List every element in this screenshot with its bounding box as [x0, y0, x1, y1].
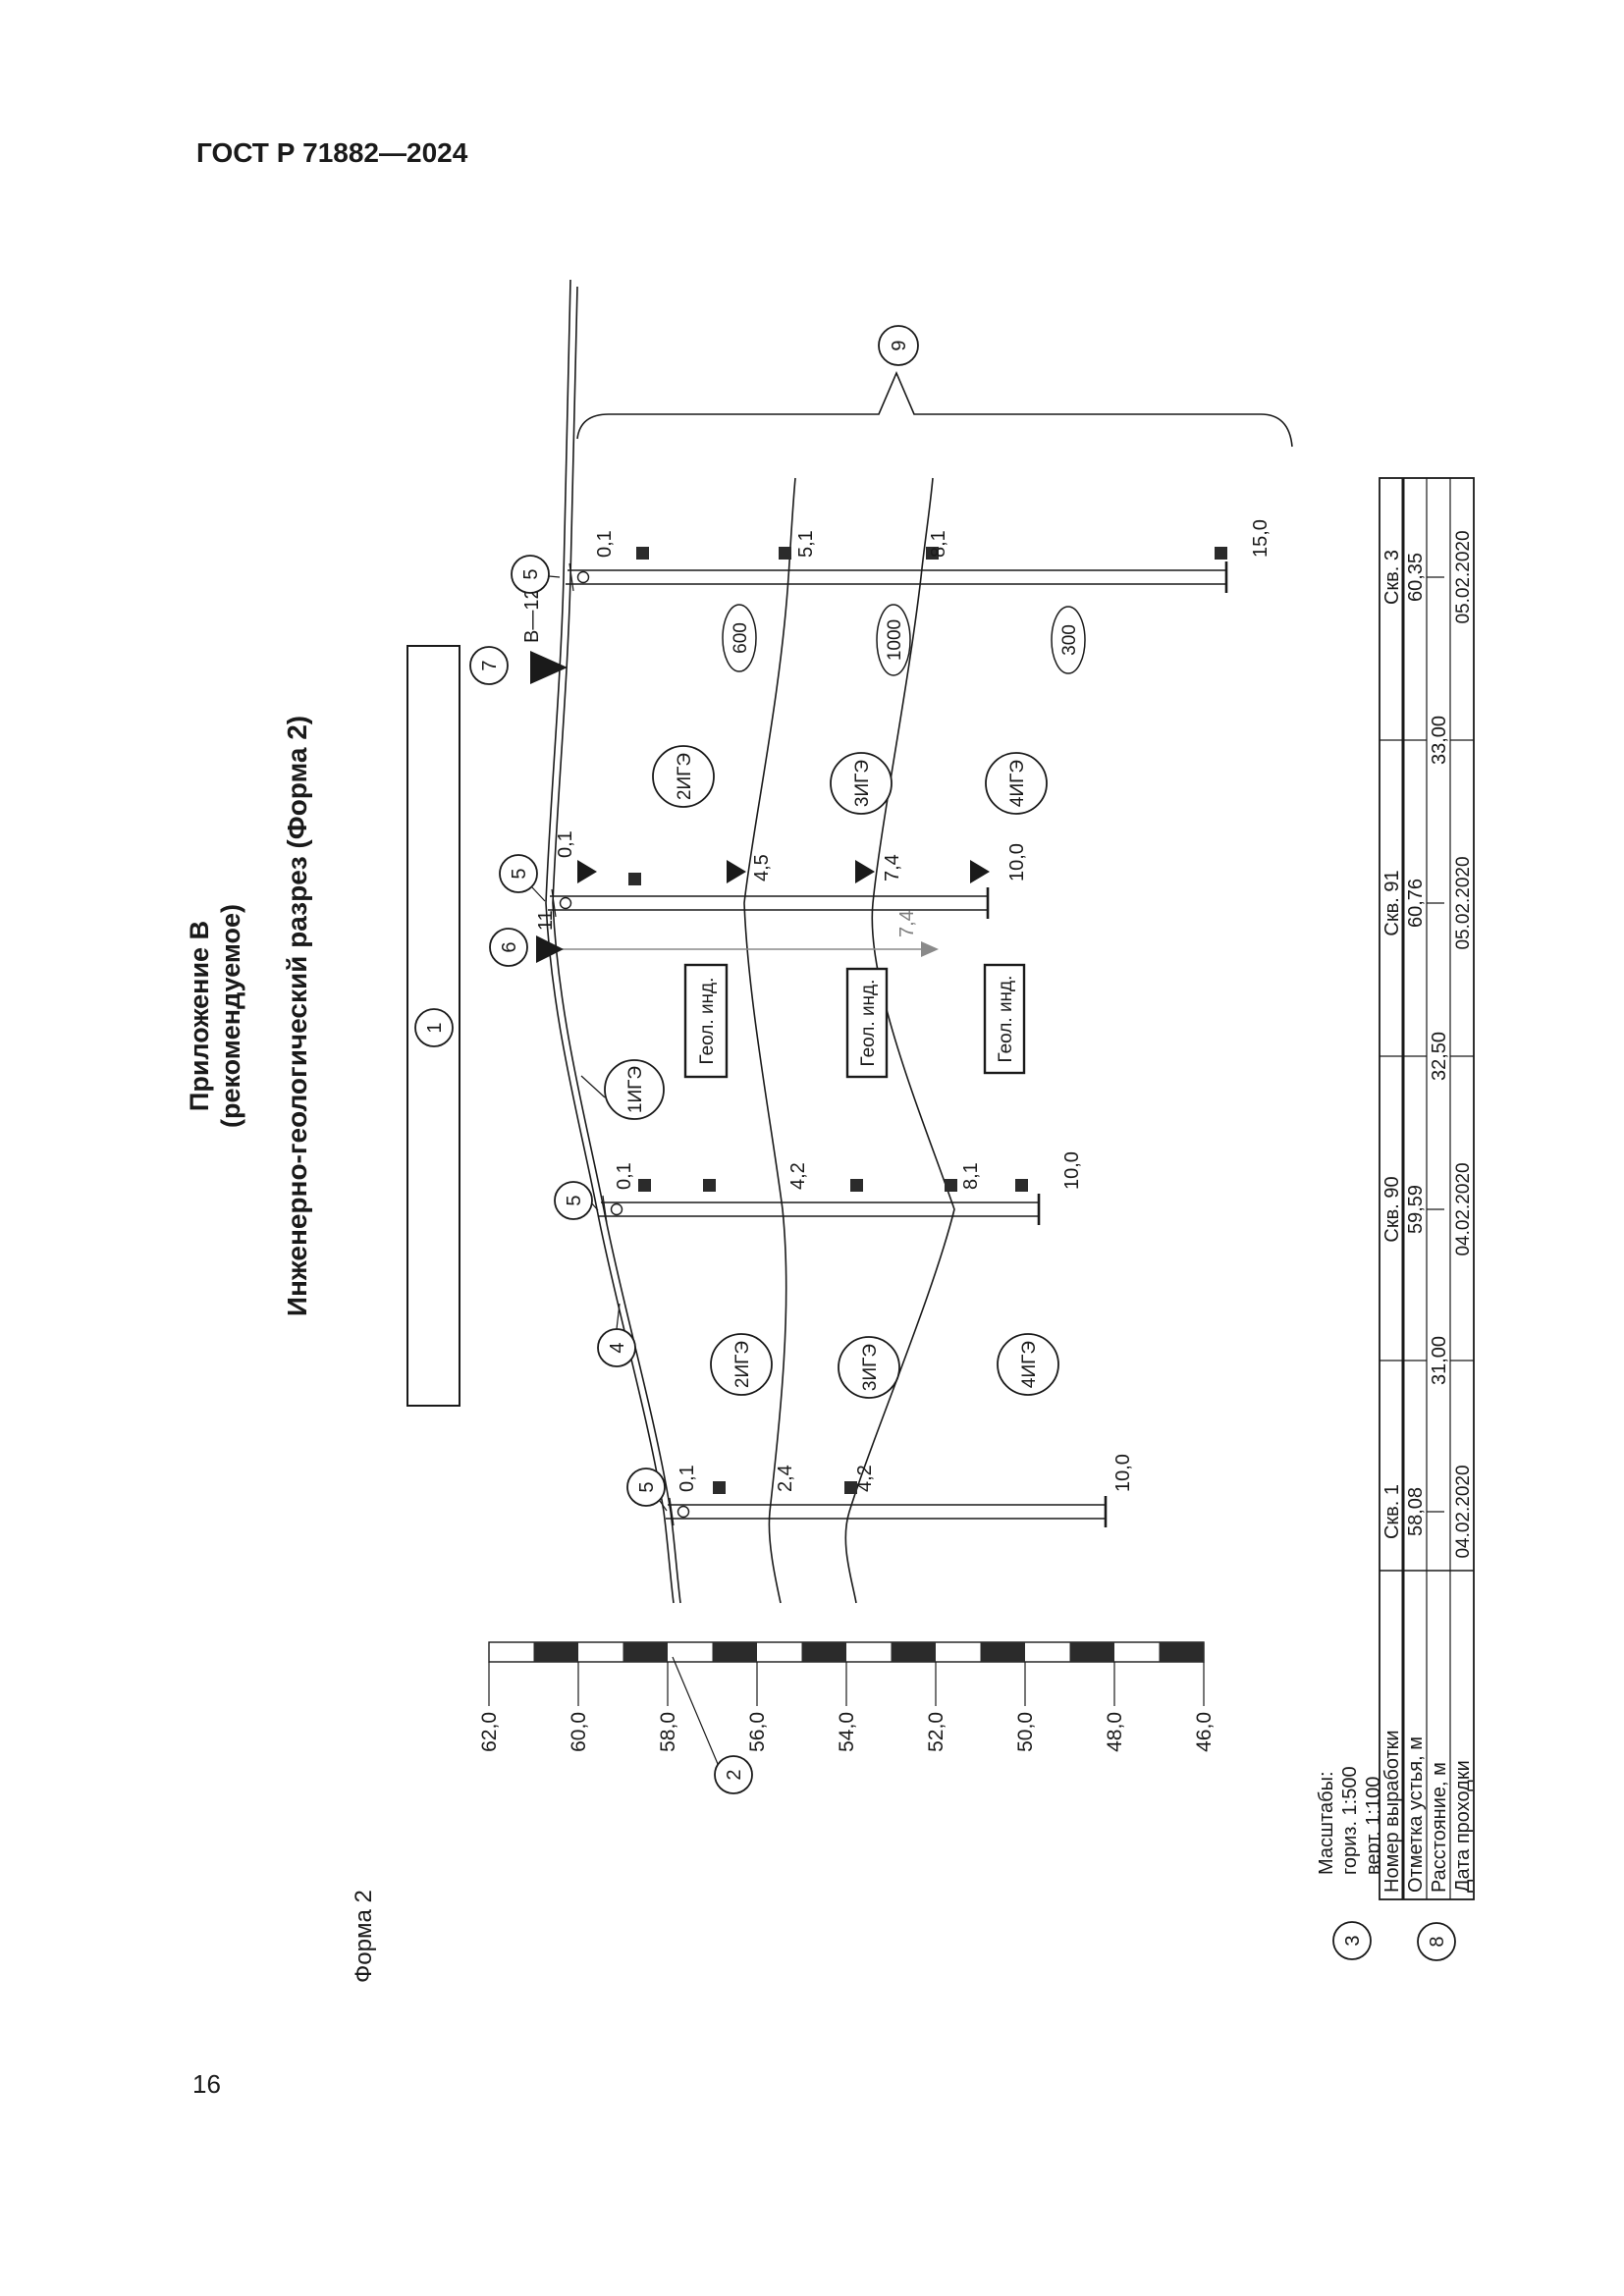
ellipse-value: 1000 — [885, 619, 905, 661]
projected-borehole-number: 11 — [535, 910, 557, 931]
borehole-mouth-icon — [561, 898, 571, 909]
ige-label: 3ИГЭ — [852, 760, 873, 807]
callout-5-number: 5 — [636, 1481, 658, 1492]
callout-9-number: 9 — [889, 340, 910, 350]
ground-surface: 4 1ИГЭ — [546, 280, 680, 1603]
section-marker-label: В—12 — [521, 588, 543, 643]
borehole-name-cell: Скв. 90 — [1381, 1176, 1403, 1242]
mouth-elevation-cell: 60,35 — [1405, 553, 1427, 602]
distance-cell: 32,50 — [1429, 1032, 1450, 1081]
ellipse-value: 300 — [1059, 624, 1080, 656]
ellipse-value: 600 — [731, 622, 751, 654]
borehole-mouth-icon — [612, 1204, 623, 1215]
ige-label: 3ИГЭ — [860, 1344, 881, 1391]
geo-index-boxes: Геол. инд. Геол. инд. Геол. инд. — [685, 965, 1024, 1077]
callout-7-number: 7 — [479, 660, 501, 670]
scale-segment — [802, 1642, 847, 1662]
geo-index-text: Геол. инд. — [697, 978, 718, 1065]
brace-path — [577, 373, 1292, 447]
sample-mark-icon — [713, 1481, 726, 1494]
depth-label: 8,1 — [960, 1162, 982, 1190]
callout-1-number: 1 — [424, 1022, 446, 1033]
drawing-title: Инженерно-геологический разрез (Форма 2) — [282, 716, 312, 1316]
sample-mark-icon — [1215, 547, 1227, 560]
scale-segment — [623, 1642, 669, 1662]
elevation-label: 48,0 — [1104, 1712, 1126, 1752]
elevation-label: 62,0 — [478, 1712, 501, 1752]
depth-label: 0,1 — [555, 830, 576, 858]
section-direction-triangle-icon — [530, 651, 568, 684]
scales-note: Масштабы: гориз. 1:500 верт. 1:100 3 — [1316, 1766, 1384, 1959]
table-row-header: Номер выработки — [1381, 1730, 1403, 1893]
table-row-header: Дата проходки — [1452, 1760, 1474, 1893]
depth-label: 5,1 — [795, 530, 817, 558]
depth-label: 0,1 — [677, 1465, 698, 1492]
scale-segment — [981, 1642, 1026, 1662]
borehole-skv-90: 0,1 4,2 8,1 10,0 5 — [555, 1151, 1083, 1225]
borehole-name-cell: Скв. 3 — [1381, 550, 1403, 605]
distance-cell: 33,00 — [1429, 716, 1450, 765]
cross-section-canvas: Приложение В (рекомендуемое) Инженерно-г… — [147, 196, 1532, 2160]
depth-label: 15,0 — [1250, 519, 1272, 558]
form-label: Форма 2 — [351, 1890, 377, 1983]
elevation-label: 46,0 — [1193, 1712, 1216, 1752]
surface-line-bottom — [553, 287, 680, 1603]
borehole-mouth-icon — [678, 1507, 689, 1518]
callout-5-number: 5 — [509, 868, 530, 879]
distance-cell: 31,00 — [1429, 1336, 1450, 1385]
scale-segment — [713, 1642, 758, 1662]
depth-label: 4,2 — [854, 1465, 876, 1492]
elevation-label: 52,0 — [925, 1712, 947, 1752]
callout-5-number: 5 — [520, 568, 542, 579]
borehole-skv-3: 0,1 5,1 8,1 15,0 5 — [512, 519, 1272, 593]
scale-segment — [534, 1642, 579, 1662]
scale-segment — [1070, 1642, 1115, 1662]
sample-mark-icon — [638, 1179, 651, 1192]
depth-label: 10,0 — [1006, 843, 1028, 881]
callout-5-leader — [532, 887, 545, 901]
data-table: Номер выработки Отметка устья, м Расстоя… — [1380, 478, 1474, 1960]
scales-title: Масштабы: — [1316, 1772, 1337, 1876]
depth-label: 10,0 — [1112, 1454, 1134, 1492]
depth-label: 8,1 — [928, 530, 949, 558]
appendix-title: Приложение В — [185, 921, 214, 1111]
callout-8-number: 8 — [1427, 1936, 1448, 1947]
scale-segment — [892, 1642, 937, 1662]
standard-number-header: ГОСТ Р 71882—2024 — [196, 137, 467, 169]
document-page: ГОСТ Р 71882—2024 16 Приложение В (реком… — [0, 0, 1624, 2296]
scales-horizontal: гориз. 1:500 — [1339, 1766, 1361, 1875]
borehole-name-cell: Скв. 91 — [1381, 870, 1403, 935]
elevation-label: 50,0 — [1014, 1712, 1037, 1752]
ige-label: 2ИГЭ — [732, 1341, 753, 1388]
depth-brace: 9 — [577, 326, 1292, 447]
elevation-label: 56,0 — [746, 1712, 769, 1752]
surface-line-top — [546, 280, 674, 1603]
callout-4-number: 4 — [607, 1342, 628, 1353]
ige-1-label: 1ИГЭ — [625, 1066, 646, 1113]
callout-2-number: 2 — [724, 1769, 745, 1780]
borehole-skv-91: 0,1 4,5 7,4 10,0 5 — [500, 830, 1028, 919]
sample-mark-icon — [703, 1179, 716, 1192]
table-row-header: Отметка устья, м — [1405, 1736, 1427, 1893]
scale-segment — [1160, 1642, 1205, 1662]
projected-borehole-bottom-arrow-icon — [921, 941, 939, 957]
appendix-subtitle: (рекомендуемое) — [216, 904, 245, 1128]
geological-cross-section-drawing: Приложение В (рекомендуемое) Инженерно-г… — [147, 196, 1532, 2160]
ige-1-leader — [581, 1076, 605, 1097]
titles: Приложение В (рекомендуемое) Инженерно-г… — [185, 716, 377, 1983]
groundwater-triangle-icon — [855, 860, 875, 883]
sample-mark-icon — [1015, 1179, 1028, 1192]
borehole-mouth-icon — [578, 572, 589, 583]
mouth-elevation-cell: 58,08 — [1405, 1487, 1427, 1536]
depth-label: 4,2 — [787, 1162, 809, 1190]
geo-index-text: Геол. инд. — [996, 976, 1016, 1063]
ellipse-values: 600 1000 300 — [723, 605, 1085, 675]
depth-label: 0,1 — [594, 530, 616, 558]
ige-label: 2ИГЭ — [675, 753, 695, 800]
sample-mark-icon — [945, 1179, 957, 1192]
depth-label: 0,1 — [614, 1162, 635, 1190]
drilling-date-cell: 05.02.2020 — [1453, 530, 1474, 623]
sample-mark-icon — [850, 1179, 863, 1192]
groundwater-triangle-icon — [970, 860, 990, 883]
drilling-date-cell: 04.02.2020 — [1453, 1465, 1474, 1558]
depth-label: 2,4 — [775, 1465, 796, 1492]
elevation-label: 54,0 — [836, 1712, 858, 1752]
callout-6-number: 6 — [499, 941, 520, 952]
borehole-name-cell: Скв. 1 — [1381, 1484, 1403, 1539]
depth-label: 7,4 — [882, 854, 903, 881]
depth-label: 4,5 — [751, 854, 773, 881]
geo-index-text: Геол. инд. — [858, 980, 879, 1067]
borehole-skv-1: 0,1 2,4 4,2 10,0 5 — [627, 1454, 1134, 1527]
elevation-scale: 62,0 60,0 58,0 56,0 54,0 52,0 50,0 48,0 … — [478, 1642, 1216, 1793]
sample-mark-icon — [628, 873, 641, 885]
groundwater-triangle-icon — [727, 860, 746, 883]
groundwater-triangle-icon — [577, 860, 597, 883]
mouth-elevation-cell: 59,59 — [1405, 1185, 1427, 1234]
mouth-elevation-cell: 60,76 — [1405, 879, 1427, 928]
sample-mark-icon — [779, 547, 791, 560]
drilling-date-cell: 04.02.2020 — [1453, 1162, 1474, 1255]
ige-label: 4ИГЭ — [1019, 1341, 1040, 1388]
callout-5-number: 5 — [564, 1195, 585, 1205]
section-intersection-marker: В—12 7 — [470, 588, 568, 684]
projected-borehole-depth: 7,4 — [896, 910, 918, 937]
drilling-date-cell: 05.02.2020 — [1453, 856, 1474, 949]
elevation-label: 58,0 — [657, 1712, 679, 1752]
ige-label: 4ИГЭ — [1007, 760, 1028, 807]
sample-mark-icon — [636, 547, 649, 560]
callout-3-number: 3 — [1342, 1935, 1364, 1946]
table-row-header: Расстояние, м — [1429, 1762, 1450, 1893]
section-line-bar: 1 — [407, 646, 460, 1406]
depth-label: 10,0 — [1061, 1151, 1083, 1190]
callout-5-leader — [549, 576, 560, 577]
elevation-label: 60,0 — [568, 1712, 590, 1752]
